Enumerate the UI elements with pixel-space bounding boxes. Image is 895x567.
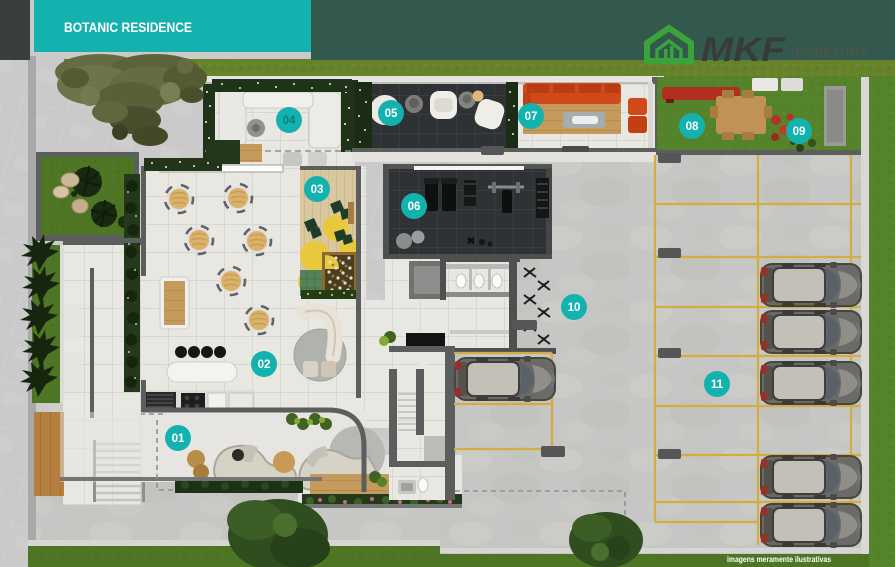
svg-text:10: 10 — [568, 302, 581, 314]
svg-text:09: 09 — [793, 126, 806, 138]
svg-text:MKF: MKF — [701, 31, 786, 69]
svg-text:01: 01 — [172, 433, 185, 445]
svg-text:08: 08 — [686, 121, 699, 133]
svg-text:04: 04 — [283, 115, 296, 127]
svg-text:imagens meramente ilustrativas: imagens meramente ilustrativas — [727, 555, 831, 564]
svg-text:06: 06 — [408, 201, 421, 213]
svg-text:BOTANIC RESIDENCE: BOTANIC RESIDENCE — [64, 19, 192, 35]
svg-text:11: 11 — [711, 379, 724, 391]
svg-text:03: 03 — [311, 184, 324, 196]
svg-text:02: 02 — [258, 359, 271, 371]
svg-text:05: 05 — [385, 108, 398, 120]
svg-text:07: 07 — [525, 111, 538, 123]
svg-text:IMOBILIÁRIA: IMOBILIÁRIA — [791, 45, 868, 60]
